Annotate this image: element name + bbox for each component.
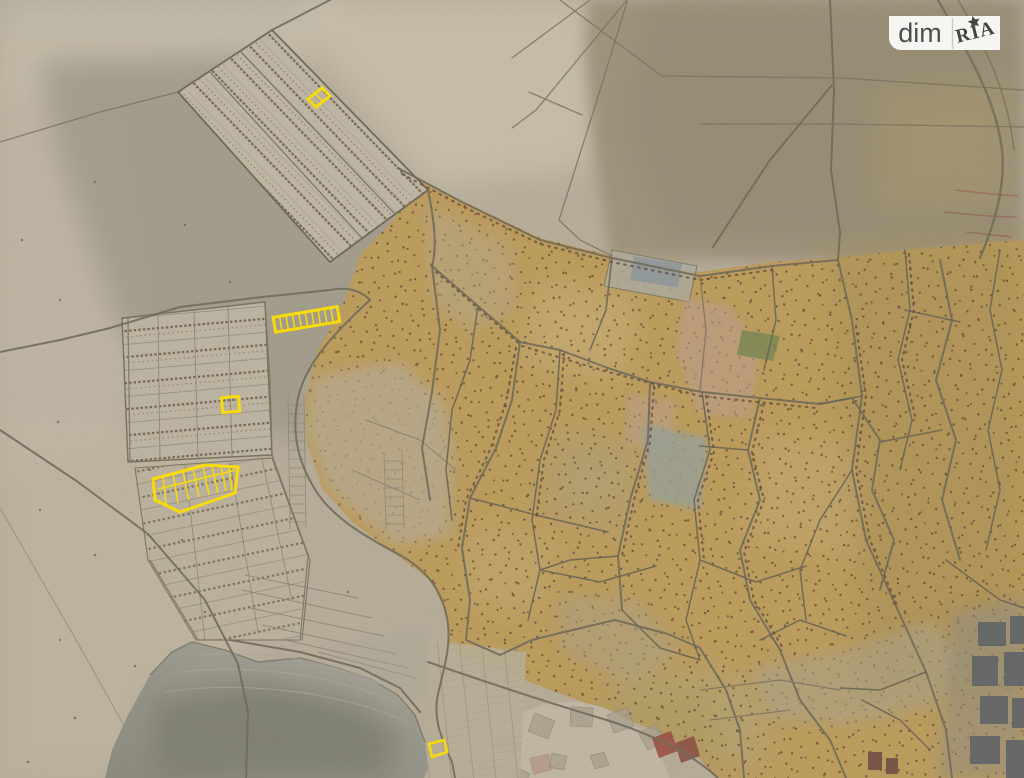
svg-text:dim: dim — [898, 18, 942, 48]
